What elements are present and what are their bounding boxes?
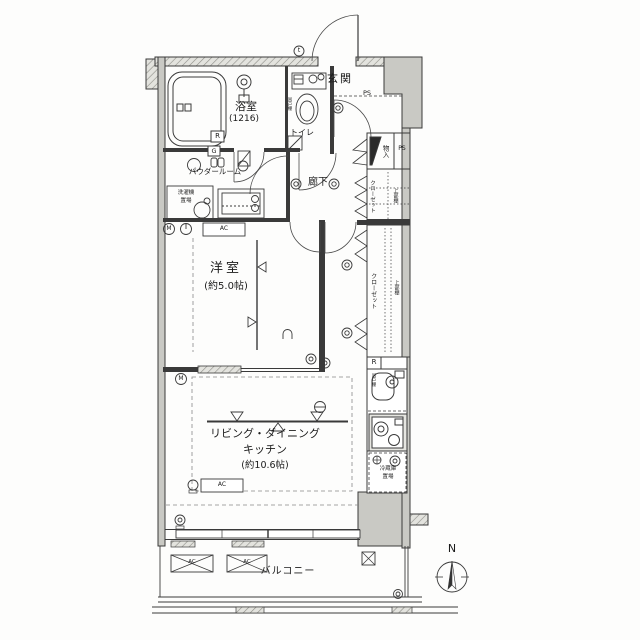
washer-label-2: 置場 (170, 198, 202, 204)
floorplan-page: 玄関 PS t 浴室 (1216) R G トイレ 吊戸棚 物入 PS 廊下 パ… (0, 0, 640, 640)
passage-door-arc (325, 222, 356, 253)
north-label: N (437, 543, 467, 555)
closet-upper-label: クローゼット (369, 173, 375, 219)
powder-room-fixtures (167, 151, 264, 219)
ps-label: PS (358, 90, 376, 97)
shower-icon (237, 75, 251, 89)
downlight-icon (333, 103, 343, 113)
folding-door (355, 176, 367, 218)
compass (435, 561, 469, 592)
storage-label: 物入 (381, 138, 388, 164)
partition-window (198, 366, 241, 373)
ldk-size-label: (約10.6帖) (180, 461, 350, 471)
r-kitchen-label: R (369, 359, 379, 367)
powder-room-label: パウダールーム (182, 168, 248, 176)
passage-icons (306, 260, 352, 368)
bathroom-label: 浴室 (226, 101, 266, 113)
western-room-size-label: (約5.0帖) (186, 281, 266, 292)
r-label: R (213, 133, 223, 141)
entrance-label: 玄関 (320, 73, 360, 85)
tick-label: t (296, 48, 303, 55)
western-room-door-arc (290, 222, 320, 252)
hall-door-arc (334, 100, 371, 137)
washer-icon (194, 202, 210, 218)
north-needle (448, 561, 452, 589)
folding-door (355, 318, 367, 350)
ac-label-2: AC (201, 482, 243, 489)
meter-label-1: M (166, 226, 173, 233)
toilet-label: トイレ (282, 129, 322, 138)
storage-closets (353, 133, 410, 357)
floorplan-drawing (0, 0, 640, 640)
fridge-label-2: 置場 (372, 474, 404, 480)
folding-door (355, 230, 367, 262)
sliding-track (241, 369, 319, 372)
storage-wedge (370, 137, 381, 165)
balcony-label: バルコニー (238, 566, 338, 577)
toilet-shelf-label: 吊戸棚 (286, 90, 291, 118)
ac-label-1: AC (203, 226, 245, 233)
ac-label-balcony-1: AC (171, 559, 213, 565)
fridge-label-1: 冷蔵庫 (372, 466, 404, 472)
balcony (152, 546, 458, 613)
ps-storage-label: PS (395, 146, 409, 153)
powder-door-arc (250, 156, 288, 194)
toilet-bowl (296, 94, 318, 124)
western-room-label: 洋室 (196, 262, 256, 276)
upper-shelf-label-1: 上部棚 (392, 181, 398, 209)
ldk-label-2: キッチン (180, 444, 350, 456)
bathroom-size-label: (1216) (222, 115, 266, 125)
kitchen-shelf-label: 吊戸棚 (370, 368, 375, 392)
hallway-label: 廊下 (300, 177, 336, 188)
ldk-label-1: リビング・ダイニング (180, 428, 350, 440)
meter-label-2: M (178, 376, 185, 383)
washer-label-1: 洗濯機 (170, 190, 202, 196)
gas-label: G (209, 148, 219, 155)
entrance-door-arc (312, 15, 358, 61)
south-windows (165, 530, 360, 548)
closet-lower-label: クローゼット (369, 263, 376, 319)
ac-label-balcony-2: AC (227, 559, 267, 565)
upper-shelf-label-2: 上部棚 (393, 273, 399, 301)
